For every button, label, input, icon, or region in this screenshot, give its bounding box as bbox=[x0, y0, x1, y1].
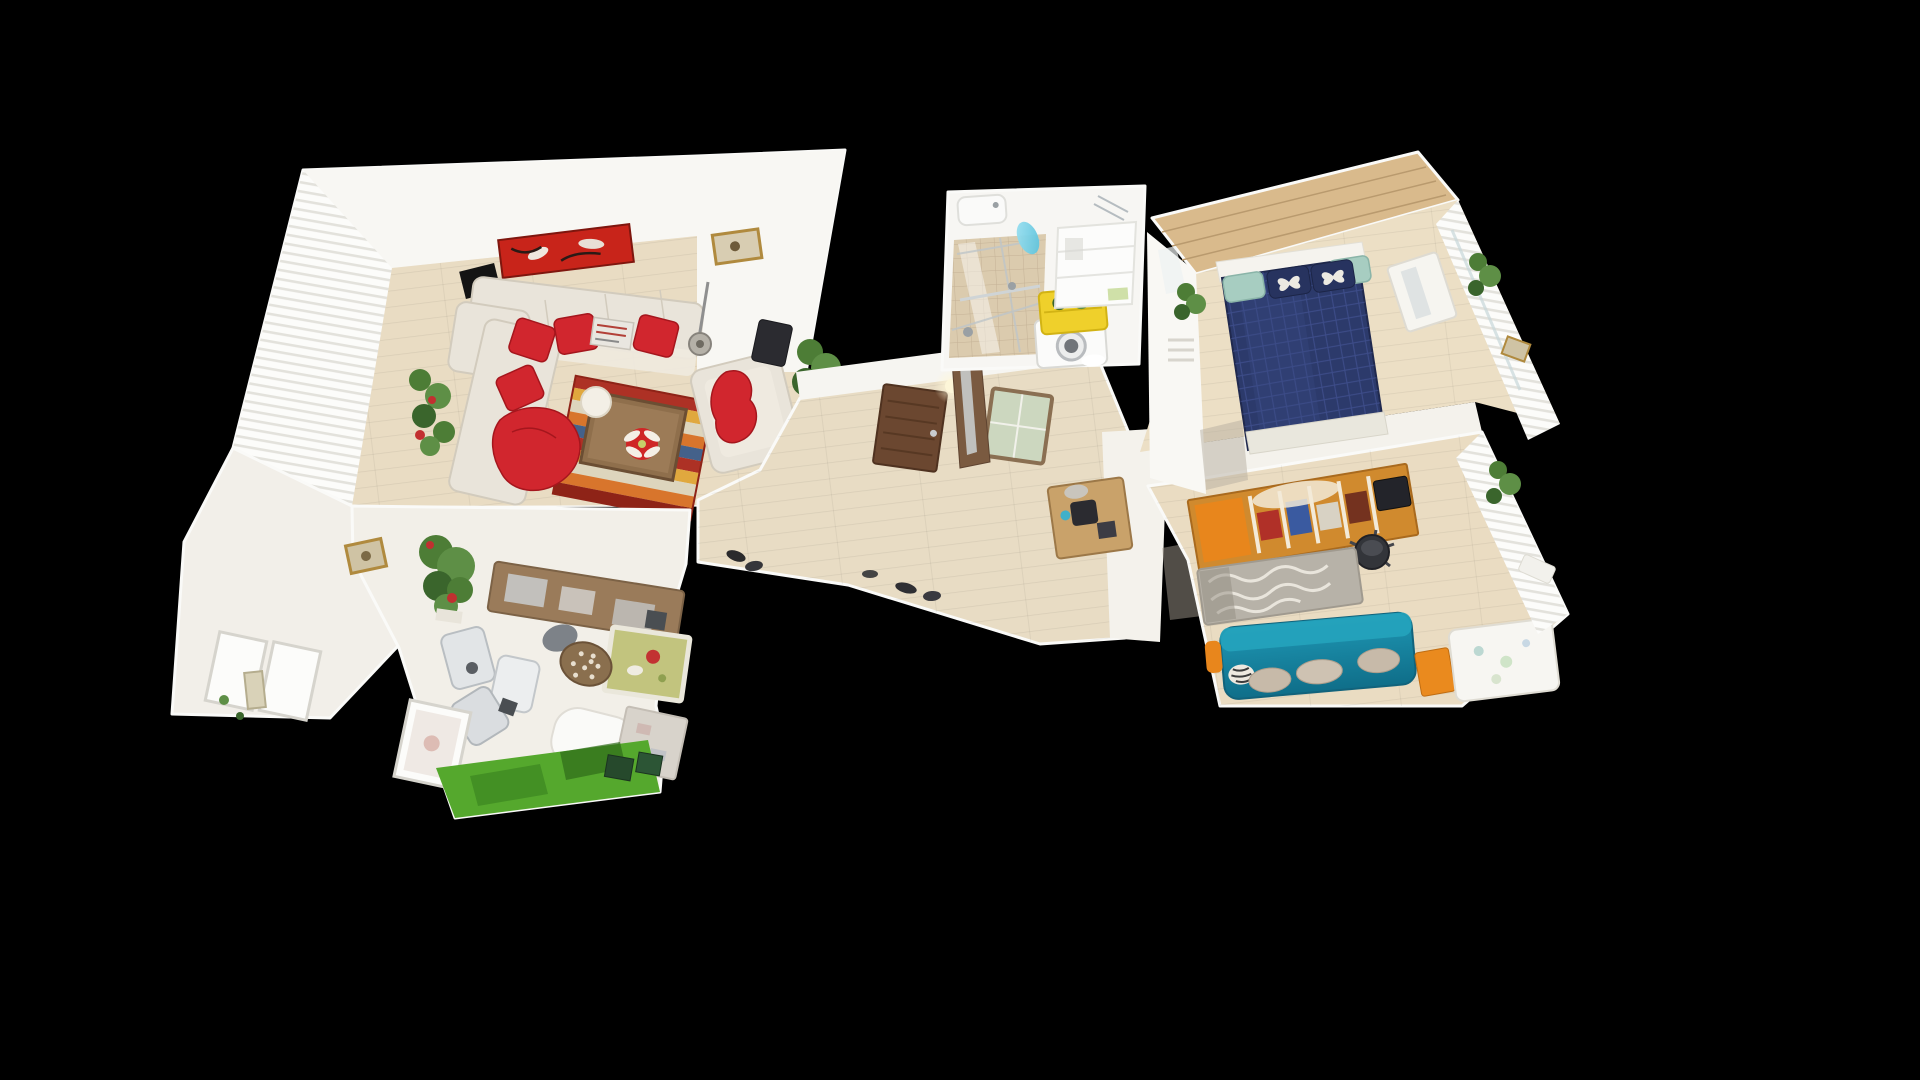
white-doily-decor bbox=[581, 387, 611, 417]
armchair-red-throw bbox=[711, 371, 756, 443]
bathroom bbox=[942, 186, 1145, 370]
printer bbox=[1373, 476, 1411, 511]
magazine-on-sofa bbox=[590, 317, 633, 349]
orange-side-panel bbox=[1414, 647, 1455, 696]
small-picture-frame bbox=[345, 539, 386, 574]
wooden-entry-door bbox=[873, 384, 948, 472]
book-spines bbox=[1257, 509, 1283, 540]
glass-panel-door bbox=[984, 388, 1053, 464]
shower-control bbox=[1008, 282, 1016, 290]
hall-dresser bbox=[1047, 477, 1132, 559]
olive-side-table bbox=[604, 627, 690, 701]
bed-foot-shadow bbox=[1200, 420, 1248, 490]
teal-pillow-left bbox=[1222, 271, 1266, 303]
apartment-3d-model bbox=[0, 0, 1920, 1080]
living-room bbox=[233, 150, 845, 520]
display-bottle bbox=[244, 671, 266, 709]
shower-drain bbox=[963, 327, 973, 337]
gold-framed-picture bbox=[712, 229, 762, 264]
white-crib bbox=[1448, 618, 1560, 702]
bathroom-cabinets bbox=[1055, 222, 1136, 308]
orange-bolster bbox=[1204, 640, 1223, 673]
dollhouse-3d-viewport[interactable] bbox=[0, 0, 1920, 1080]
bathroom-sink bbox=[957, 194, 1007, 225]
